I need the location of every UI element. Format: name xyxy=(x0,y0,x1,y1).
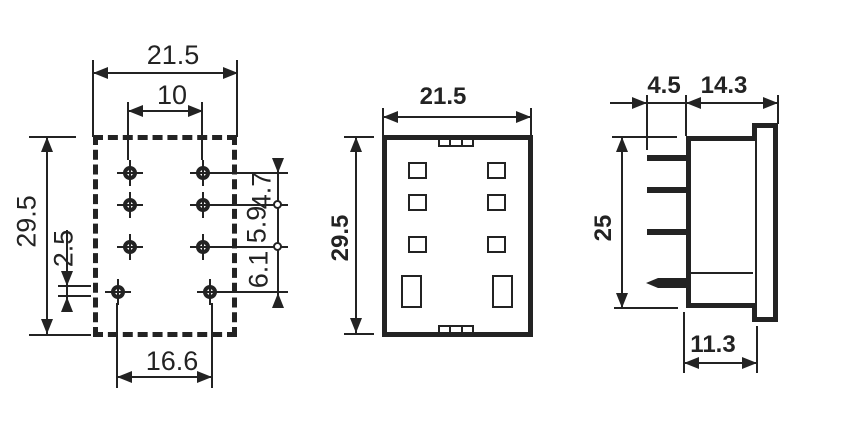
pin-bar-wide xyxy=(658,278,688,288)
ext-line xyxy=(344,333,374,335)
arrowhead-icon xyxy=(117,371,132,383)
terminal-cutout xyxy=(408,194,427,211)
arrowhead-icon xyxy=(272,293,284,308)
terminal-cutout-tall xyxy=(401,275,422,308)
pin-hole-marker xyxy=(190,234,216,260)
pin-hole-marker xyxy=(105,279,131,305)
ext-line xyxy=(646,95,648,150)
pin-hole-marker xyxy=(197,279,223,305)
bottom-notch xyxy=(438,325,474,334)
inner-edge-line xyxy=(691,272,753,274)
terminal-cutout xyxy=(487,194,506,211)
arrowhead-icon xyxy=(616,293,628,308)
dim-line xyxy=(621,137,623,308)
dim-label-row-gap-3: 6.1 xyxy=(246,245,273,295)
pin-hole-marker xyxy=(190,192,216,218)
dim-label-pin-offset: 2.5 xyxy=(51,224,78,274)
dim-label-pin-span: 10 xyxy=(147,82,197,109)
arrowhead-icon xyxy=(41,137,53,152)
dim-label-side-height: 25 xyxy=(592,208,616,248)
terminal-cutout xyxy=(408,162,427,179)
pin-pointed-tip-icon xyxy=(646,278,658,288)
dim-label-width: 21.5 xyxy=(138,42,208,69)
arrowhead-icon xyxy=(686,97,701,109)
pin-hole-marker xyxy=(190,160,216,186)
pin-hole-marker xyxy=(117,192,143,218)
top-notch xyxy=(438,138,474,147)
dim-label-bottom-pin-span: 16.6 xyxy=(137,348,207,375)
pin-bar xyxy=(647,187,688,193)
chain-node-icon xyxy=(273,242,282,251)
pin-bar xyxy=(647,229,688,235)
arrowhead-icon xyxy=(516,111,531,123)
dim-label-front-height: 29.5 xyxy=(329,203,353,273)
terminal-cutout xyxy=(408,236,427,253)
terminal-cutout xyxy=(487,236,506,253)
dim-line xyxy=(355,137,357,333)
dim-label-depth-total: 14.3 xyxy=(693,74,755,98)
dim-line xyxy=(383,116,531,118)
terminal-cutout-tall xyxy=(492,275,513,308)
dimensional-drawing-canvas: 21.5 10 29.5 2.5 xyxy=(0,0,860,444)
dim-label-height: 29.5 xyxy=(14,186,41,258)
arrowhead-icon xyxy=(41,319,53,334)
arrowhead-icon xyxy=(684,357,699,369)
ext-line xyxy=(777,95,779,124)
arrowhead-icon xyxy=(61,297,73,312)
side-body-outline xyxy=(686,136,757,308)
arrowhead-icon xyxy=(763,97,778,109)
pin-hole-marker xyxy=(117,234,143,260)
pin-bar xyxy=(647,155,688,161)
dim-line xyxy=(610,102,686,104)
terminal-cutout xyxy=(487,162,506,179)
arrowhead-icon xyxy=(223,67,238,79)
arrowhead-icon xyxy=(632,97,647,109)
dim-label-row-gap-2: 5.9 xyxy=(244,200,271,250)
arrowhead-icon xyxy=(616,137,628,152)
arrowhead-icon xyxy=(128,105,143,117)
dim-label-depth-body: 11.3 xyxy=(682,333,744,357)
dim-line xyxy=(277,158,279,308)
arrowhead-icon xyxy=(383,111,398,123)
arrowhead-icon xyxy=(350,318,362,333)
arrowhead-icon xyxy=(350,137,362,152)
dim-label-pin-length: 4.5 xyxy=(639,74,689,98)
dim-line xyxy=(93,72,238,74)
dim-label-front-width: 21.5 xyxy=(408,85,478,109)
pin-hole-marker xyxy=(117,160,143,186)
ext-line xyxy=(29,334,91,336)
arrowhead-icon xyxy=(93,67,108,79)
arrowhead-icon xyxy=(742,357,757,369)
